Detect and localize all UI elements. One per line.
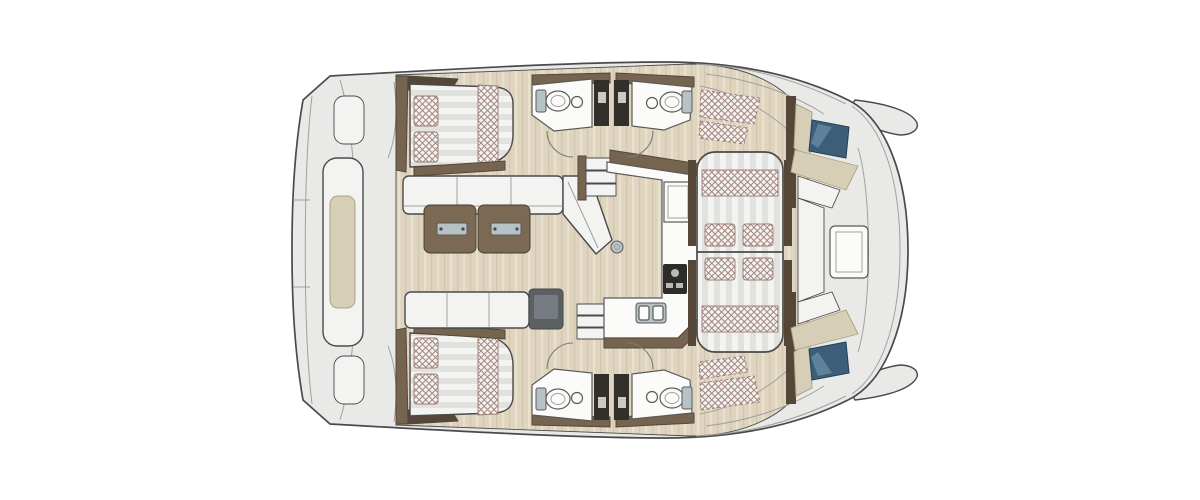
lounge-cushion	[705, 224, 735, 246]
stair-tread	[586, 184, 616, 196]
stove-knob	[676, 283, 683, 288]
deck-hatch-window	[809, 342, 849, 380]
bed-pillow	[414, 132, 438, 162]
starboard-aft-cabin	[396, 324, 513, 424]
lounge-cushion	[743, 224, 773, 246]
column-slit	[598, 397, 606, 408]
toilet	[546, 389, 570, 409]
handle-pin	[515, 227, 518, 230]
stair-tread	[577, 328, 606, 339]
bed-pillow	[414, 338, 438, 368]
bed-pillow	[414, 96, 438, 126]
toilet	[660, 388, 684, 408]
stair-rail	[578, 156, 586, 200]
toilet	[546, 91, 570, 111]
bed-pillow	[414, 374, 438, 404]
stove-panel	[663, 264, 687, 294]
transom-step-top	[334, 96, 364, 144]
floor-drain	[611, 241, 623, 253]
sink-bowl	[653, 306, 663, 320]
cooler-lid	[534, 295, 558, 319]
galley-sink	[636, 303, 666, 323]
head-compartment	[632, 370, 692, 419]
deck-hatch-window	[809, 120, 849, 158]
transom-step-bottom	[334, 356, 364, 404]
bow-bench	[798, 198, 824, 302]
deck-plan-drawing	[0, 0, 1200, 500]
port-aft-cabin	[396, 76, 513, 176]
sunbed-bolster	[702, 306, 778, 332]
washbasin	[572, 97, 583, 108]
boat-deck-plan	[0, 0, 1200, 500]
cabin-bulkhead	[396, 76, 408, 172]
stove	[663, 264, 687, 294]
sunbed-bolster	[702, 170, 778, 196]
cabin-bulkhead	[396, 328, 408, 424]
stern-bench	[323, 158, 363, 346]
column-slit	[618, 92, 626, 103]
bed-bolster	[478, 85, 498, 166]
sofa-bottom	[405, 292, 529, 328]
toilet-tank	[536, 90, 546, 112]
toilet	[660, 92, 684, 112]
stern-bench-cushion	[330, 196, 355, 308]
toilet-tank	[682, 387, 692, 409]
column-slit	[618, 397, 626, 408]
head-compartment	[632, 81, 692, 130]
toilet-tank	[536, 388, 546, 410]
handle-pin	[493, 227, 496, 230]
column-slit	[598, 92, 606, 103]
sink-bowl	[639, 306, 649, 320]
bed-bolster	[478, 335, 498, 415]
lounge-rail	[688, 160, 696, 246]
lounge-rail	[688, 260, 696, 346]
handle-pin	[461, 227, 464, 230]
forward-lounge	[688, 152, 792, 352]
toilet-tank	[682, 91, 692, 113]
lounge-cushion	[705, 258, 735, 280]
stair-tread	[577, 304, 606, 315]
washbasin	[647, 392, 658, 403]
washbasin	[572, 393, 583, 404]
lounge-cushion	[743, 258, 773, 280]
stove-knob	[666, 283, 673, 288]
stove-burner	[671, 269, 679, 277]
stair-tread	[577, 316, 606, 327]
washbasin	[647, 98, 658, 109]
handle-pin	[439, 227, 442, 230]
